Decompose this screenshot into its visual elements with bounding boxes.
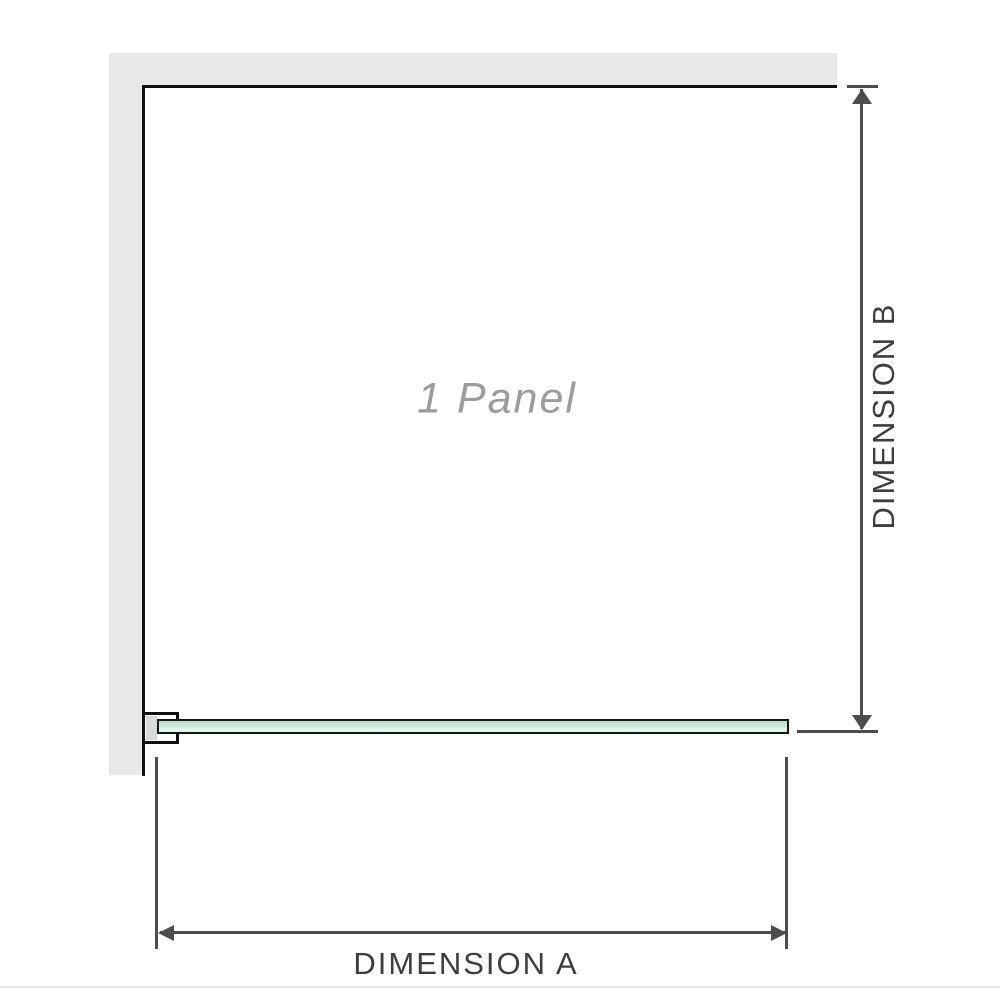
dimension-a-extension-left (155, 757, 158, 949)
wall-top-segment (109, 53, 837, 86)
dimension-a-extension-right (785, 757, 788, 949)
panel-count-label: 1 Panel (417, 375, 577, 424)
page-divider (0, 986, 1000, 988)
panel-outline-top (142, 85, 837, 88)
dimension-a-line (160, 931, 785, 934)
bracket-pad (146, 716, 157, 740)
dimension-b-tick-top (847, 85, 878, 88)
shower-panel-diagram: 1 Panel DIMENSION B DIMENSION A (0, 0, 1000, 1000)
panel-outline-left (142, 85, 145, 776)
dimension-b-line (860, 89, 863, 729)
dimension-b-label: DIMENSION B (866, 303, 902, 530)
arrow-up-icon (852, 89, 872, 104)
arrow-right-icon (771, 925, 787, 941)
dimension-b-tick-bottom (797, 730, 878, 733)
wall-left-segment (109, 53, 142, 775)
dimension-a-label: DIMENSION A (353, 946, 578, 982)
arrow-down-icon (852, 715, 872, 730)
glass-panel-bar (157, 719, 789, 734)
arrow-left-icon (158, 925, 174, 941)
